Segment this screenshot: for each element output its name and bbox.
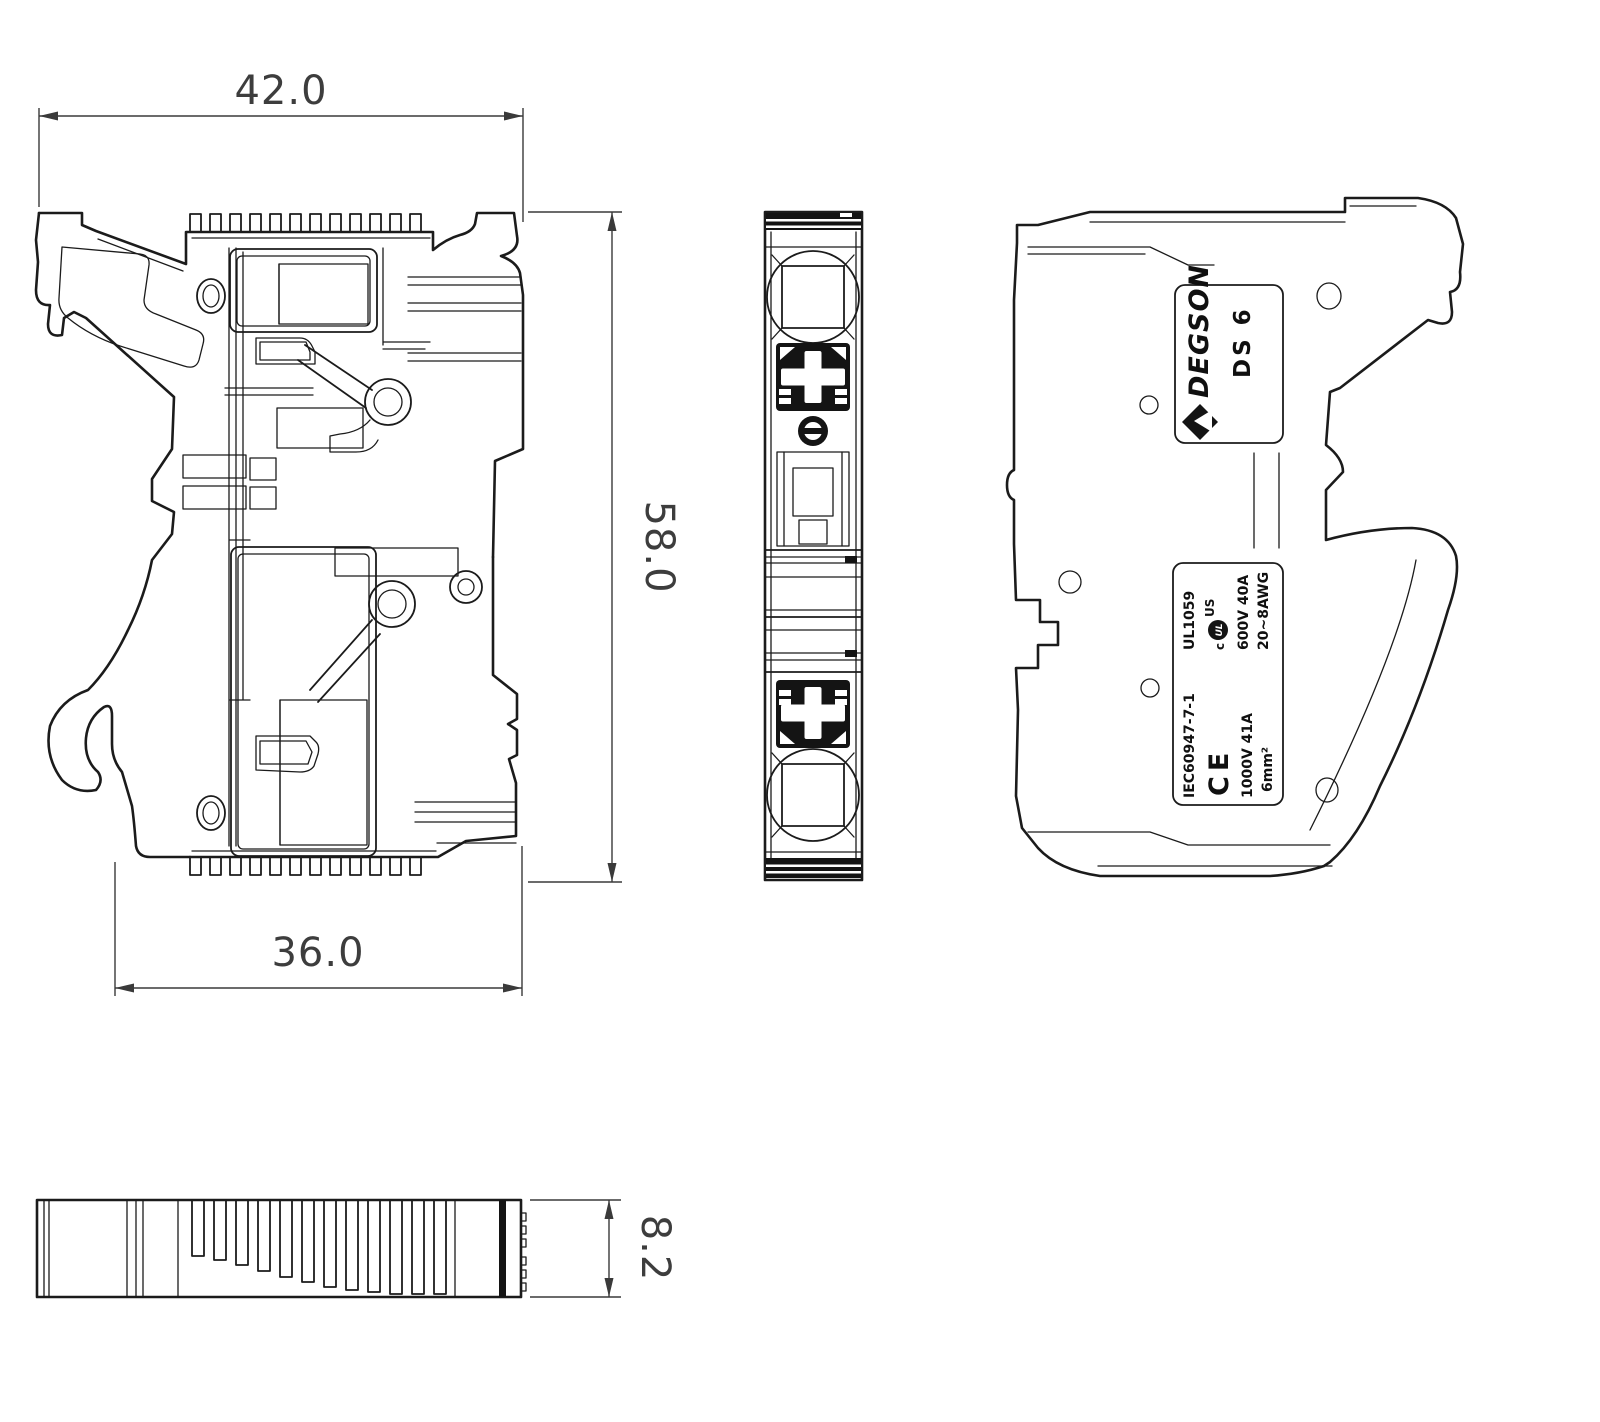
hole-mid [1141, 679, 1159, 697]
ul-rating: 600V 40A [1236, 575, 1252, 650]
spec-ul-cluster: UL1059 c UL US 600V 40A 20~8AWG [1182, 572, 1272, 650]
brand-name: DEGSON [1184, 264, 1215, 398]
upper-clamp-housing [230, 249, 377, 332]
ul-mark-suffix: US [1203, 599, 1217, 617]
technical-drawing-sheet: 42.0 58.0 36.0 [0, 0, 1600, 1422]
ul-mark: UL [1215, 623, 1225, 636]
clip-arm-cavity [59, 247, 204, 367]
dim-thickness-value: 8.2 [632, 1215, 678, 1282]
ul-wire-range: 20~8AWG [1256, 572, 1272, 650]
side-section-view [36, 213, 523, 875]
flange-oval-top [197, 279, 225, 313]
hole-top-right [1317, 283, 1341, 309]
dim-height-value: 58.0 [636, 500, 682, 593]
wire-entry-top [767, 251, 859, 343]
cul-us-mark: c UL US [1203, 599, 1228, 650]
front-view [765, 212, 862, 880]
front-top-band [766, 213, 861, 230]
hole-top [1140, 396, 1158, 414]
top-teeth [190, 214, 430, 232]
lower-saddle [256, 736, 319, 772]
bottom-view [37, 1200, 526, 1297]
terminal-cross-top [776, 343, 850, 411]
upper-saddle [256, 338, 315, 364]
brand-label: DEGSON DS 6 [1175, 264, 1283, 443]
boss-circle [450, 571, 482, 603]
dimension-top-width: 42.0 [39, 68, 523, 222]
front-center-details [766, 452, 861, 672]
label-view-outline [1007, 198, 1463, 876]
iec-wire-size: 6mm² [1260, 747, 1276, 792]
iec-standard: IEC60947-7-1 [1182, 693, 1198, 798]
dim-top-width-value: 42.0 [234, 68, 327, 114]
ul-standard: UL1059 [1182, 591, 1198, 650]
front-bottom-band [766, 852, 861, 878]
flange-oval-bottom [197, 796, 225, 830]
iec-rating: 1000V 41A [1240, 713, 1256, 798]
bottom-comb-teeth [192, 1200, 446, 1294]
hole-mid-left [1059, 571, 1081, 593]
section-outline-left [36, 213, 190, 857]
spec-label: UL1059 c UL US 600V 40A 20~8AWG IEC60947… [1173, 563, 1283, 805]
bottom-teeth [190, 857, 430, 875]
dimension-thickness: 8.2 [530, 1200, 678, 1297]
hole-bottom-right [1316, 778, 1338, 802]
dim-bottom-width-value: 36.0 [271, 930, 364, 976]
ul-mark-prefix: c [1213, 643, 1227, 650]
mid-blocks [183, 408, 458, 576]
wire-entry-bottom [767, 749, 859, 841]
side-label-view: DEGSON DS 6 UL1059 c UL US 600V 40A 20~8… [1007, 198, 1463, 876]
clamp-screw [798, 416, 828, 446]
brand-model: DS 6 [1230, 306, 1256, 378]
dimension-bottom-width: 36.0 [115, 846, 522, 996]
spec-iec-cluster: IEC60947-7-1 CE 1000V 41A 6mm² [1182, 693, 1276, 798]
ce-mark: CE [1204, 748, 1235, 796]
lower-spring [310, 581, 415, 702]
dimension-height: 58.0 [528, 212, 682, 882]
terminal-cross-bottom [776, 680, 850, 748]
lower-clamp-housing [231, 547, 376, 856]
